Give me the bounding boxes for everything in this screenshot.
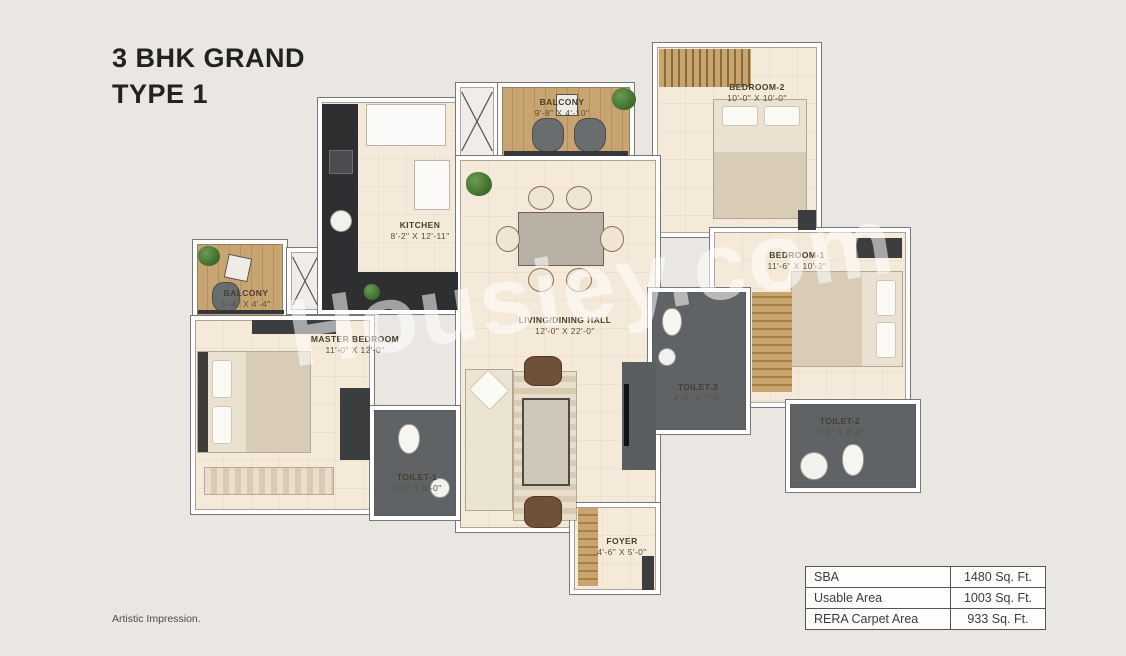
shaft-cross-icon [291,252,319,310]
dresser-master [252,320,336,334]
pillow [764,106,800,126]
shaft-top [456,83,498,160]
rug-master [205,468,333,494]
shaft-cross-icon [460,87,494,156]
area-label: RERA Carpet Area [806,609,951,630]
kitchen-sink [330,210,352,232]
pillow [876,280,896,316]
sofa [466,370,512,510]
room-label-toilet-1: TOILET-1 5'-0" X 8'-0" [392,472,441,494]
blanket [714,152,806,218]
room-label-toilet-3: TOILET-3 4'-6" X 7'-6" [673,382,722,404]
pillow [212,406,232,444]
area-table: SBA 1480 Sq. Ft. Usable Area 1003 Sq. Ft… [805,566,1046,630]
floor-plan-page: 3 BHK GRAND TYPE 1 [0,0,1126,656]
page-title: 3 BHK GRAND TYPE 1 [112,40,305,112]
balcony-chair [574,118,606,152]
toilet-2-wc [842,444,864,476]
dresser-bedroom-1 [856,238,902,258]
table-row: SBA 1480 Sq. Ft. [806,567,1046,588]
table-row: RERA Carpet Area 933 Sq. Ft. [806,609,1046,630]
nightstand [798,210,816,230]
stove [329,150,353,174]
pillow [876,322,896,358]
dining-chair [566,186,592,210]
headboard [198,352,208,452]
plant [612,88,636,110]
wardrobe-master [340,388,370,460]
room-label-balcony-left: BALCONY 5'-4" X 4'-4" [221,288,270,310]
wardrobe-bedroom-1 [752,292,792,392]
blanket [792,272,862,366]
room-toilet-1 [370,406,460,520]
plant [198,246,220,266]
toilet-3-basin [658,348,676,366]
pillow [212,360,232,398]
dining-chair [496,226,520,252]
plant [466,172,492,196]
room-label-bedroom-1: BEDROOM-1 11'-6" X 10'-2" [767,250,826,272]
entrance-door [642,556,654,590]
area-value: 1480 Sq. Ft. [951,567,1046,588]
room-label-foyer: FOYER 4'-6" X 5'-0" [597,536,646,558]
area-label: Usable Area [806,588,951,609]
accent-chair [524,496,562,528]
balcony-table [224,254,252,282]
fridge [366,104,446,146]
bed-master [198,352,310,452]
tv-screen [624,384,629,446]
pillow [722,106,758,126]
dining-chair [528,268,554,292]
dining-chair [566,268,592,292]
foyer-bench [578,508,598,586]
area-value: 1003 Sq. Ft. [951,588,1046,609]
kitchen-counter-bottom [322,272,458,310]
fruit-bowl [364,284,380,300]
room-label-living-dining: LIVING/DINING HALL 12'-0" X 22'-0" [519,315,612,337]
room-label-master-bedroom: MASTER BEDROOM 11'-0" X 12'-0" [311,334,399,356]
tv-unit [622,362,656,470]
bed-bedroom-2 [714,100,806,218]
table-row: Usable Area 1003 Sq. Ft. [806,588,1046,609]
toilet-2-basin [800,452,828,480]
room-label-toilet-2: TOILET-2 7'-6" X 4'-6" [815,416,864,438]
dining-table [518,212,604,266]
balcony-railing [504,151,628,156]
sofa-pillow [468,369,509,410]
page-title-line1: 3 BHK GRAND [112,40,305,76]
kitchen-appliance [414,160,450,210]
balcony-railing [198,310,284,314]
area-value: 933 Sq. Ft. [951,609,1046,630]
accent-chair [524,356,562,386]
balcony-chair [532,118,564,152]
dining-chair [600,226,624,252]
room-label-bedroom-2: BEDROOM-2 10'-0" X 10'-0" [727,82,787,104]
blanket [246,352,310,452]
page-title-line2: TYPE 1 [112,76,305,112]
room-label-kitchen: KITCHEN 8'-2" X 12'-11" [390,220,449,242]
area-label: SBA [806,567,951,588]
toilet-1-wc [398,424,420,454]
bed-bedroom-1 [792,272,902,366]
room-label-balcony-top: BALCONY 9'-8" X 4'-10" [535,97,590,119]
artistic-impression-note: Artistic Impression. [112,613,201,625]
coffee-table [522,398,570,486]
toilet-3-wc [662,308,682,336]
dining-chair [528,186,554,210]
